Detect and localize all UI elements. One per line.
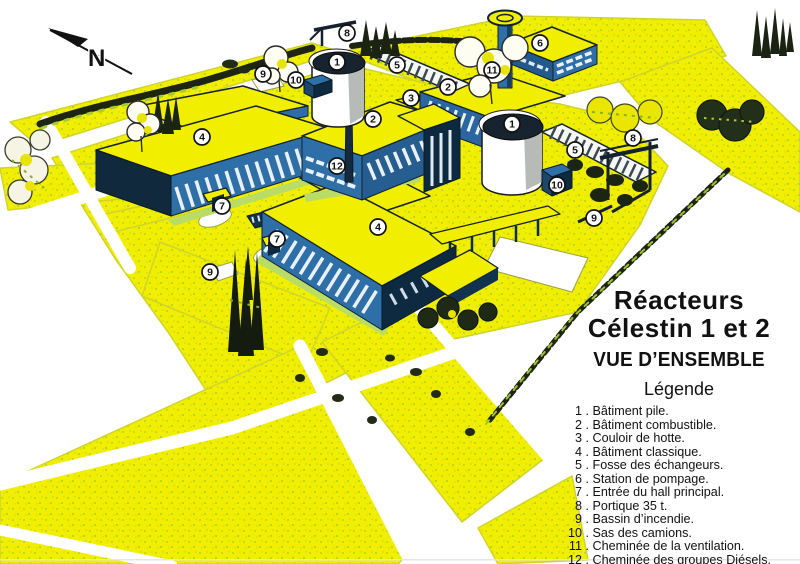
legend-item: 9 . Bassin d’incendie.: [562, 513, 800, 527]
map-marker-5: 5: [567, 142, 583, 158]
legend-item: 2 . Bâtiment combustible.: [562, 419, 800, 433]
legend-panel: Réacteurs Célestin 1 et 2 VUE D’ENSEMBLE…: [556, 286, 800, 564]
map-marker-10: 10: [549, 177, 565, 193]
svg-text:1: 1: [334, 57, 340, 69]
svg-text:2: 2: [370, 114, 376, 126]
legend-list: 1 . Bâtiment pile.2 . Bâtiment combustib…: [556, 405, 800, 564]
svg-text:7: 7: [274, 234, 280, 246]
legend-item: 1 . Bâtiment pile.: [562, 405, 800, 419]
svg-text:5: 5: [394, 60, 400, 72]
map-marker-7: 7: [269, 231, 285, 247]
svg-text:5: 5: [572, 145, 578, 157]
map-marker-2: 2: [440, 79, 456, 95]
north-arrow: N: [48, 28, 132, 74]
svg-text:4: 4: [199, 132, 205, 144]
svg-text:6: 6: [537, 38, 543, 50]
legend-item: 3 . Couloir de hotte.: [562, 432, 800, 446]
map-marker-10: 10: [288, 72, 304, 88]
svg-text:2: 2: [445, 82, 451, 94]
map-marker-3: 3: [403, 90, 419, 106]
page-title-line2: Célestin 1 et 2: [556, 314, 800, 342]
svg-text:11: 11: [486, 65, 497, 77]
map-marker-9: 9: [586, 210, 602, 226]
legend-item: 11 . Cheminée de la ventilation.: [562, 540, 800, 554]
map-marker-11: 11: [484, 62, 500, 78]
map-marker-7: 7: [214, 198, 230, 214]
legend-item: 7 . Entrée du hall principal.: [562, 486, 800, 500]
svg-text:9: 9: [260, 69, 266, 81]
map-marker-4: 4: [370, 219, 386, 235]
svg-text:10: 10: [551, 180, 563, 192]
north-label: N: [88, 45, 105, 72]
legend-item: 10 . Sas des camions.: [562, 527, 800, 541]
map-marker-1: 1: [504, 116, 520, 132]
svg-text:4: 4: [375, 222, 381, 234]
map-marker-2: 2: [365, 111, 381, 127]
legend-item: 6 . Station de pompage.: [562, 473, 800, 487]
svg-text:12: 12: [331, 161, 343, 173]
legend-item: 8 . Portique 35 t.: [562, 500, 800, 514]
svg-text:3: 3: [408, 93, 414, 105]
scanned-site-plan: N 1122344556778899910101112 Réacteurs Cé…: [0, 0, 800, 564]
map-marker-1: 1: [329, 54, 345, 70]
svg-text:1: 1: [509, 119, 515, 131]
svg-text:9: 9: [591, 213, 597, 225]
svg-text:8: 8: [630, 133, 636, 145]
legend-item: 4 . Bâtiment classique.: [562, 446, 800, 460]
map-marker-8: 8: [339, 25, 355, 41]
svg-text:8: 8: [344, 28, 350, 40]
svg-text:7: 7: [219, 201, 225, 213]
map-marker-9: 9: [202, 264, 218, 280]
map-marker-12: 12: [329, 158, 345, 174]
map-marker-9: 9: [255, 66, 271, 82]
svg-text:9: 9: [207, 267, 213, 279]
svg-text:10: 10: [290, 75, 302, 87]
legend-item: 12 . Cheminée des groupes Diésels.: [562, 554, 800, 564]
page-subtitle: VUE D’ENSEMBLE: [562, 349, 796, 371]
map-marker-5: 5: [389, 57, 405, 73]
pine-cluster-top-center: [360, 20, 400, 58]
north-arrowhead: [48, 28, 88, 47]
map-marker-6: 6: [532, 35, 548, 51]
tower-top: [488, 11, 522, 26]
legend-heading: Légende: [556, 379, 800, 399]
map-marker-8: 8: [625, 130, 641, 146]
map-marker-4: 4: [194, 129, 210, 145]
legend-item: 5 . Fosse des échangeurs.: [562, 459, 800, 473]
pine-cluster-top-right: [752, 8, 794, 58]
page-title-line1: Réacteurs: [556, 286, 800, 314]
